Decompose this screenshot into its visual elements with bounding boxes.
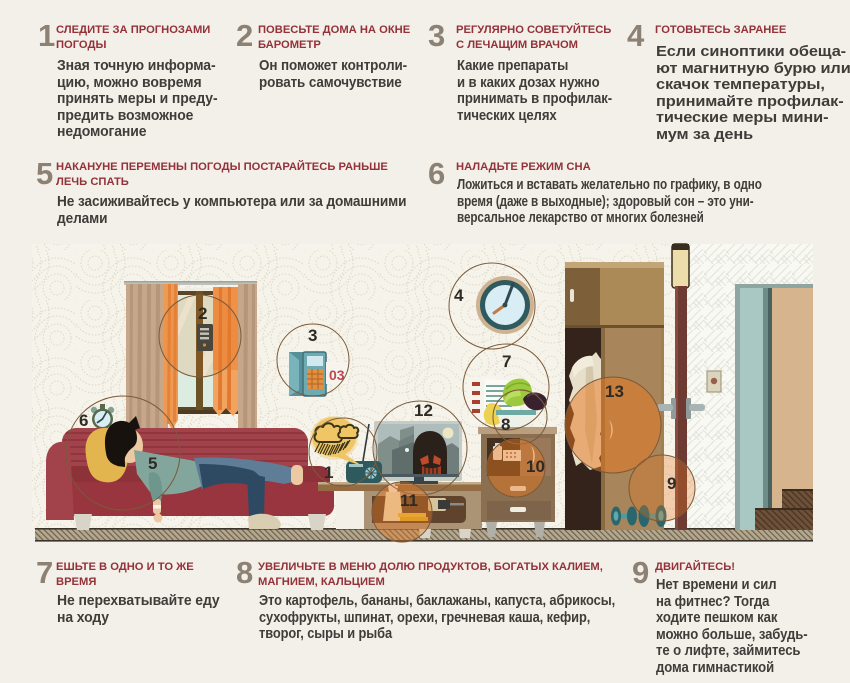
svg-text:11: 11 (400, 491, 418, 510)
svg-text:6: 6 (79, 411, 88, 430)
svg-text:7: 7 (502, 352, 511, 371)
svg-text:3: 3 (308, 326, 317, 345)
svg-text:9: 9 (667, 474, 676, 493)
svg-text:1: 1 (324, 463, 333, 482)
svg-text:13: 13 (605, 382, 624, 401)
svg-text:4: 4 (454, 286, 464, 305)
svg-text:8: 8 (501, 415, 510, 434)
svg-text:12: 12 (414, 401, 433, 420)
svg-text:2: 2 (198, 304, 207, 323)
svg-text:5: 5 (148, 454, 157, 473)
svg-text:10: 10 (526, 457, 545, 476)
